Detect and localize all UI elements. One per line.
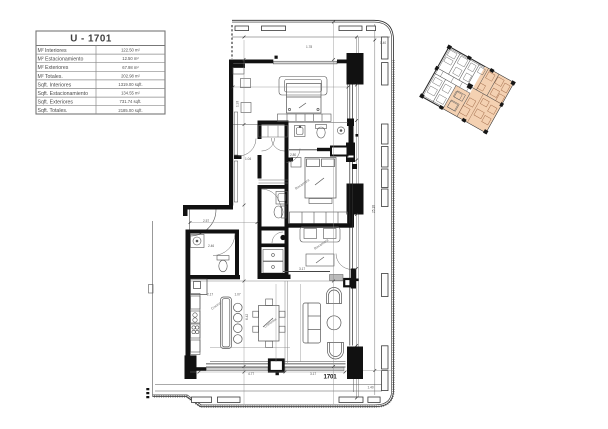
svg-text:4.77: 4.77 xyxy=(248,372,254,376)
svg-text:3.17: 3.17 xyxy=(310,372,316,376)
svg-text:1701: 1701 xyxy=(324,374,338,381)
svg-text:2.80: 2.80 xyxy=(290,153,296,157)
svg-text:M² Interiores: M² Interiores xyxy=(38,48,68,54)
svg-text:1.40: 1.40 xyxy=(368,386,374,390)
svg-text:1.78: 1.78 xyxy=(306,45,312,49)
svg-text:25.18: 25.18 xyxy=(372,205,376,213)
svg-text:2185.00 sqft.: 2185.00 sqft. xyxy=(118,108,142,113)
svg-text:731.74 sqft.: 731.74 sqft. xyxy=(120,99,142,104)
svg-text:1.40: 1.40 xyxy=(380,41,386,45)
svg-text:134.55 m²: 134.55 m² xyxy=(121,91,140,96)
svg-text:1319.00 sqft.: 1319.00 sqft. xyxy=(118,82,142,87)
svg-text:M² Totales.: M² Totales. xyxy=(38,74,63,80)
svg-text:1.07: 1.07 xyxy=(235,293,241,297)
svg-text:2.46: 2.46 xyxy=(208,244,214,248)
svg-text:M² Estacionamiento: M² Estacionamiento xyxy=(38,57,84,63)
svg-text:6.42: 6.42 xyxy=(245,314,249,320)
svg-text:1.04: 1.04 xyxy=(245,157,251,161)
svg-text:Sqft. Exteriores: Sqft. Exteriores xyxy=(38,100,74,106)
svg-text:2.57: 2.57 xyxy=(203,219,209,223)
svg-text:1.93: 1.93 xyxy=(236,101,240,107)
svg-text:U - 1701: U - 1701 xyxy=(70,34,112,45)
svg-text:2.17: 2.17 xyxy=(207,293,213,297)
svg-text:12.50 m²: 12.50 m² xyxy=(122,56,139,61)
svg-text:122.50 m²: 122.50 m² xyxy=(121,48,140,53)
svg-text:3.17: 3.17 xyxy=(299,267,305,271)
svg-text:67.98 m²: 67.98 m² xyxy=(122,65,139,70)
svg-text:M² Exteriores: M² Exteriores xyxy=(38,65,69,71)
svg-text:Sqft. Estacionamiento: Sqft. Estacionamiento xyxy=(38,91,89,97)
svg-text:Sqft. Interiores: Sqft. Interiores xyxy=(38,82,72,88)
svg-text:202.98 m²: 202.98 m² xyxy=(121,73,140,78)
svg-text:Sqft. Totales.: Sqft. Totales. xyxy=(38,108,68,114)
